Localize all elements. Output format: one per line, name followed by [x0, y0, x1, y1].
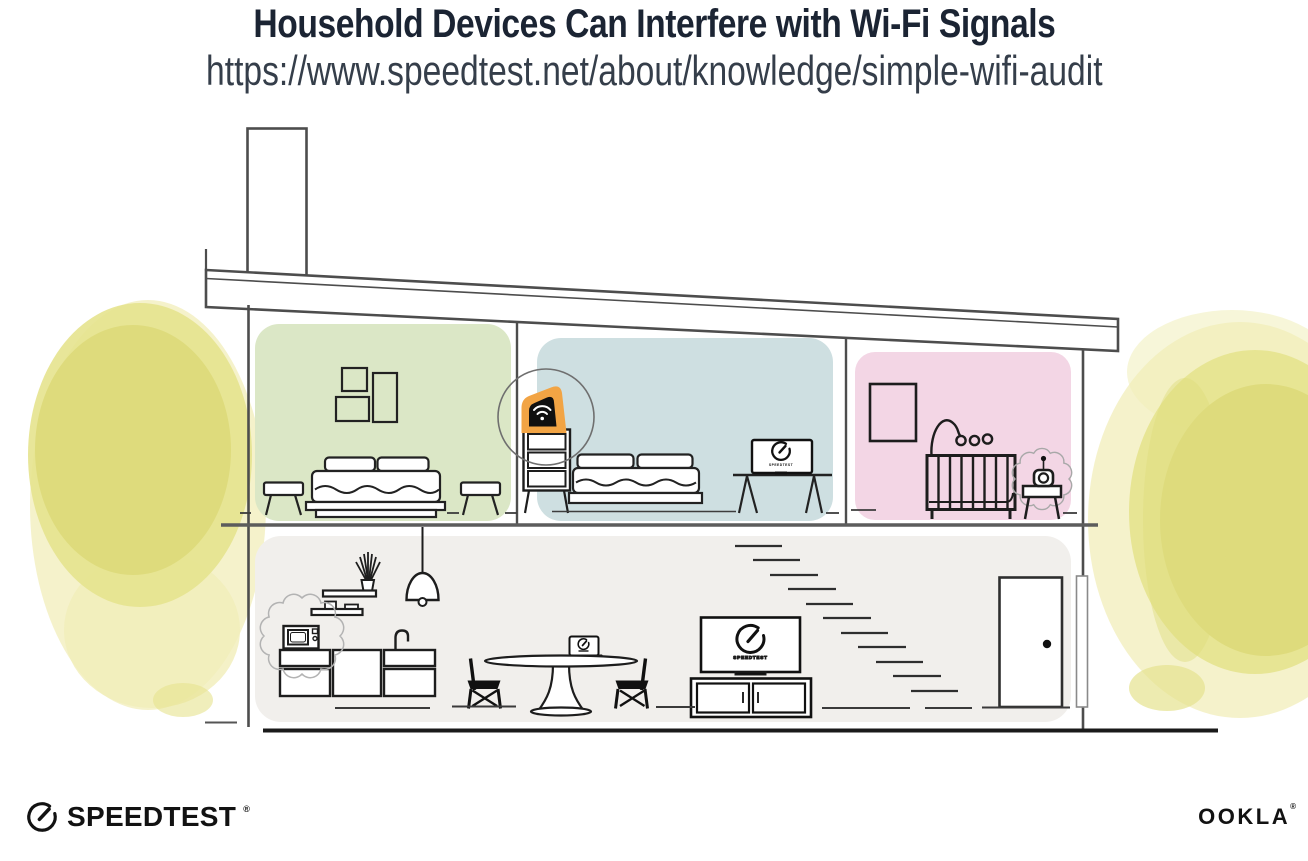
bed-pillow [378, 458, 429, 472]
speedtest-monitor: SPEEDTEST [752, 440, 812, 474]
speedtest-logo: SPEEDTEST® [24, 799, 250, 835]
speedtest-gauge-icon [24, 799, 60, 835]
table-base [531, 708, 591, 716]
downspout [1077, 576, 1088, 707]
table-top [485, 656, 637, 667]
chimney [248, 129, 307, 287]
ookla-wordmark: OOKLA [1198, 804, 1290, 829]
monitor-screen-label: SPEEDTEST [769, 463, 794, 467]
house-structure [206, 129, 1118, 352]
microwave-icon [284, 626, 319, 649]
tv-screen-label: SPEEDTEST [733, 655, 768, 660]
door-knob [1043, 640, 1051, 648]
stool [461, 483, 500, 496]
stool [264, 483, 303, 496]
speedtest-wordmark: SPEEDTEST [67, 801, 236, 833]
bed-base [306, 502, 445, 510]
house-cross-section-illustration: SPEEDTEST [0, 0, 1308, 861]
dresser-drawer [528, 434, 566, 450]
foliage-right [1088, 310, 1308, 718]
bed-base [569, 493, 702, 503]
tv-unit: SPEEDTEST [691, 618, 811, 718]
bed-base [316, 510, 436, 517]
shelf-board [323, 591, 376, 597]
ookla-logo: OOKLA® [1198, 804, 1296, 830]
bed-pillow [638, 455, 693, 469]
speedtest-trademark: ® [243, 804, 250, 814]
speedtest-tv: SPEEDTEST [701, 618, 800, 676]
dresser-drawer [528, 471, 566, 487]
ookla-trademark: ® [1290, 802, 1296, 811]
bed-pillow [578, 455, 634, 469]
foliage-left [28, 300, 266, 717]
shelf-board [312, 609, 363, 615]
front-door [1000, 578, 1063, 708]
media-console [691, 679, 811, 718]
bed-pillow [325, 458, 375, 472]
